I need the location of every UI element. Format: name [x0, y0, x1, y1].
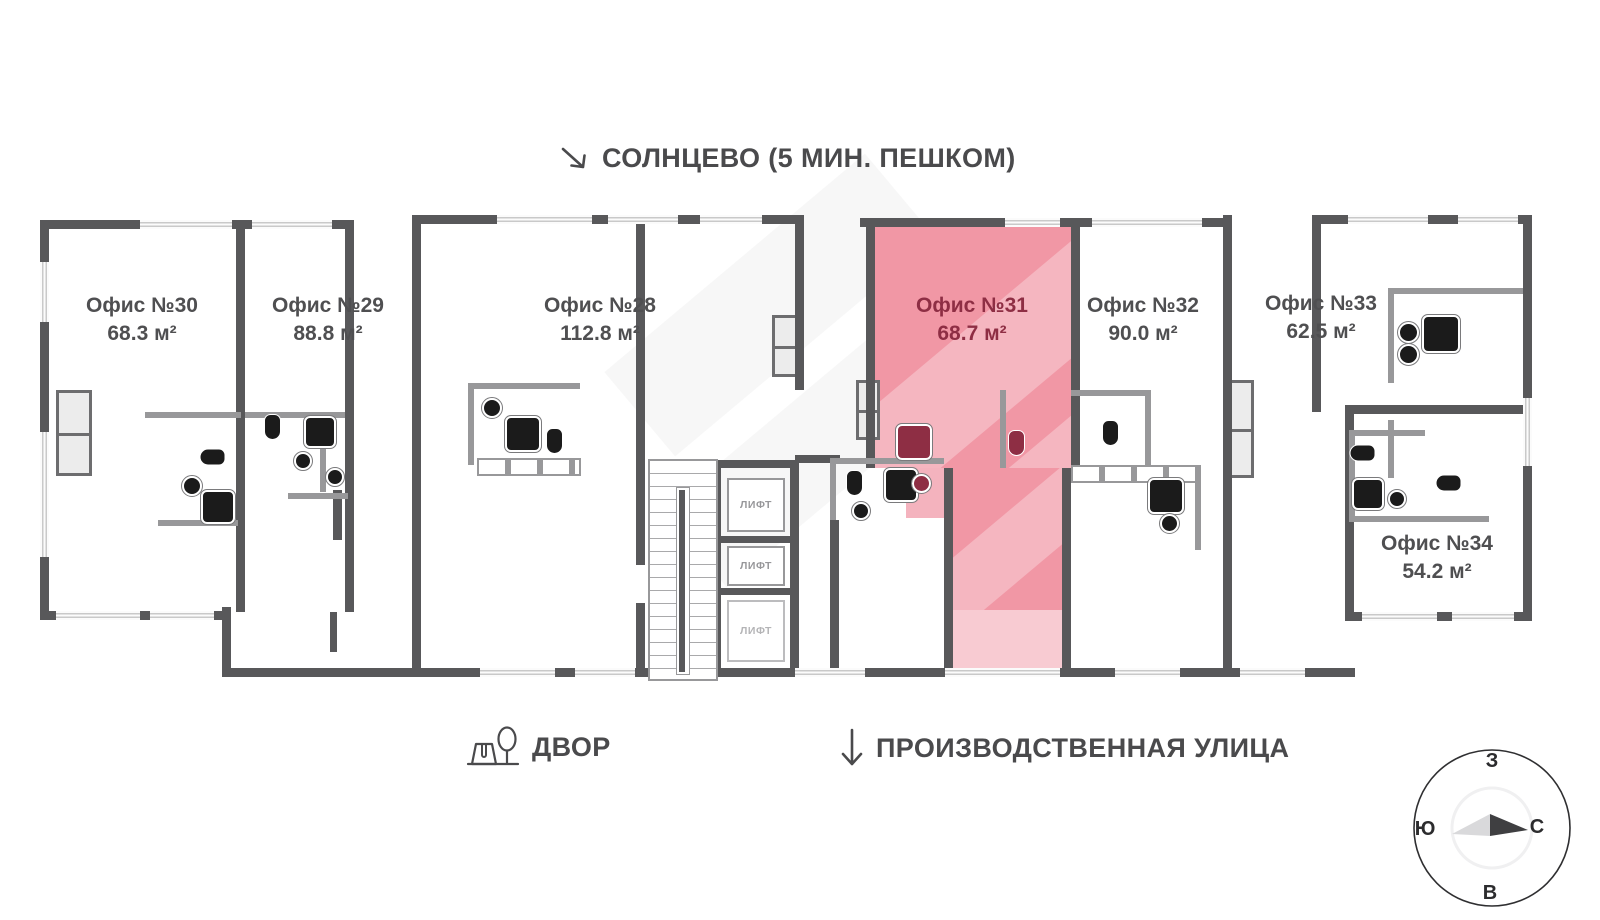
wall — [714, 460, 799, 468]
office-33-name: Офис №33 — [1232, 290, 1410, 318]
office-28-label[interactable]: Офис №28 112.8 м² — [505, 292, 695, 348]
office-31-name: Офис №31 — [878, 292, 1066, 320]
window — [945, 668, 1060, 677]
elevator-1: ЛИФТ — [727, 478, 785, 532]
street-label: ПРОИЗВОДСТВЕННАЯ УЛИЦА — [838, 726, 1289, 770]
toilet-icon — [1008, 430, 1025, 456]
faucet-icon — [326, 468, 344, 486]
courtyard-icon — [462, 724, 522, 770]
office-29-label[interactable]: Офис №29 88.8 м² — [248, 292, 408, 348]
arrow-down-icon — [838, 726, 866, 770]
office-28-name: Офис №28 — [505, 292, 695, 320]
wall — [944, 468, 953, 677]
courtyard-label: ДВОР — [462, 724, 611, 770]
office-34-label[interactable]: Офис №34 54.2 м² — [1348, 530, 1526, 586]
partition — [1145, 390, 1151, 468]
wall — [222, 668, 1355, 677]
window — [140, 220, 232, 229]
wall — [1223, 215, 1232, 677]
office-31-area: 68.7 м² — [878, 320, 1066, 348]
faucet-icon — [1398, 344, 1419, 365]
elevator-2: ЛИФТ — [727, 546, 785, 586]
partition — [1349, 516, 1489, 522]
stair-stringer — [676, 487, 690, 675]
toilet-icon — [200, 449, 226, 466]
partition — [830, 458, 836, 520]
compass-south: Ю — [1412, 818, 1438, 841]
office-33-area: 62.5 м² — [1232, 318, 1410, 346]
elevator-3-label: ЛИФТ — [740, 625, 772, 637]
floor-plan: ЛИФТ ЛИФТ ЛИФТ — [0, 0, 1600, 920]
toilet-icon — [1350, 445, 1376, 462]
wall — [412, 215, 421, 677]
partition — [468, 383, 580, 389]
toilet-icon — [846, 470, 863, 496]
wall — [790, 460, 799, 677]
office-32-area: 90.0 м² — [1064, 320, 1222, 348]
window — [40, 262, 49, 322]
faucet-icon — [182, 476, 202, 496]
partition — [1071, 390, 1151, 396]
sink-icon — [896, 424, 932, 460]
office-30-label[interactable]: Офис №30 68.3 м² — [58, 292, 226, 348]
window — [1240, 668, 1305, 677]
window — [1348, 215, 1428, 224]
wall — [1062, 468, 1071, 677]
office-29-name: Офис №29 — [248, 292, 408, 320]
partition — [1349, 430, 1425, 436]
elevator-2-label: ЛИФТ — [740, 560, 772, 572]
highlight-chevron — [953, 468, 1062, 610]
partition — [468, 383, 474, 465]
office-34-name: Офис №34 — [1348, 530, 1526, 558]
wall — [795, 215, 804, 390]
office-32-label[interactable]: Офис №32 90.0 м² — [1064, 292, 1222, 348]
partition — [288, 493, 348, 499]
window — [1115, 668, 1180, 677]
elevator-3: ЛИФТ — [727, 600, 785, 662]
office-32-name: Офис №32 — [1064, 292, 1222, 320]
compass-north: С — [1524, 816, 1550, 839]
glazed-partition — [477, 458, 581, 476]
sink-icon — [201, 490, 235, 524]
wall — [345, 220, 354, 612]
office-31-vestibule — [953, 610, 1062, 668]
faucet-icon — [912, 474, 931, 493]
wall — [866, 218, 875, 468]
faucet-icon — [482, 398, 502, 418]
shower-icon — [1422, 315, 1460, 353]
window — [56, 611, 140, 620]
office-30-area: 68.3 м² — [58, 320, 226, 348]
courtyard-text: ДВОР — [532, 732, 611, 763]
staircase — [648, 459, 718, 681]
window — [1452, 612, 1514, 621]
office-28-area: 112.8 м² — [505, 320, 695, 348]
window — [497, 215, 592, 224]
office-33-label[interactable]: Офис №33 62.5 м² — [1232, 290, 1410, 346]
window — [1523, 398, 1532, 466]
toilet-icon — [1102, 420, 1119, 446]
floor-plan-page: СОЛНЦЕВО (5 МИН. ПЕШКОМ) — [0, 0, 1600, 920]
faucet-icon — [294, 452, 312, 470]
wall — [330, 612, 337, 652]
window — [480, 668, 555, 677]
partition — [1000, 390, 1006, 468]
office-34-area: 54.2 м² — [1348, 558, 1526, 586]
closet — [56, 390, 92, 476]
window — [795, 668, 865, 677]
office-30-name: Офис №30 — [58, 292, 226, 320]
compass-west: З — [1479, 750, 1505, 773]
window — [1092, 218, 1202, 227]
wall — [714, 588, 799, 595]
faucet-icon — [1160, 514, 1179, 533]
window — [1362, 612, 1437, 621]
wall — [830, 520, 839, 677]
sink-icon — [505, 416, 541, 452]
office-29-area: 88.8 м² — [248, 320, 408, 348]
wall — [714, 536, 799, 543]
window — [1005, 218, 1060, 227]
office-31-corridor — [953, 468, 1062, 610]
window — [1458, 215, 1518, 224]
faucet-icon — [1388, 490, 1406, 508]
window — [252, 220, 332, 229]
wall — [636, 215, 645, 565]
faucet-icon — [852, 502, 870, 520]
sink-icon — [1148, 478, 1184, 514]
toilet-icon — [546, 428, 563, 454]
toilet-icon — [264, 414, 281, 440]
partition — [1388, 420, 1394, 478]
sink-icon — [1352, 478, 1384, 510]
window — [575, 668, 635, 677]
wall — [1345, 405, 1532, 414]
window — [608, 215, 678, 224]
wall — [636, 603, 645, 677]
sink-icon — [304, 416, 336, 448]
partition — [145, 412, 241, 418]
office-31-label[interactable]: Офис №31 68.7 м² — [878, 292, 1066, 348]
window — [40, 432, 49, 557]
toilet-icon — [1436, 475, 1462, 492]
window — [150, 611, 214, 620]
elevator-1-label: ЛИФТ — [740, 499, 772, 511]
window — [700, 215, 762, 224]
compass-east: В — [1477, 882, 1503, 905]
street-text: ПРОИЗВОДСТВЕННАЯ УЛИЦА — [876, 733, 1289, 764]
